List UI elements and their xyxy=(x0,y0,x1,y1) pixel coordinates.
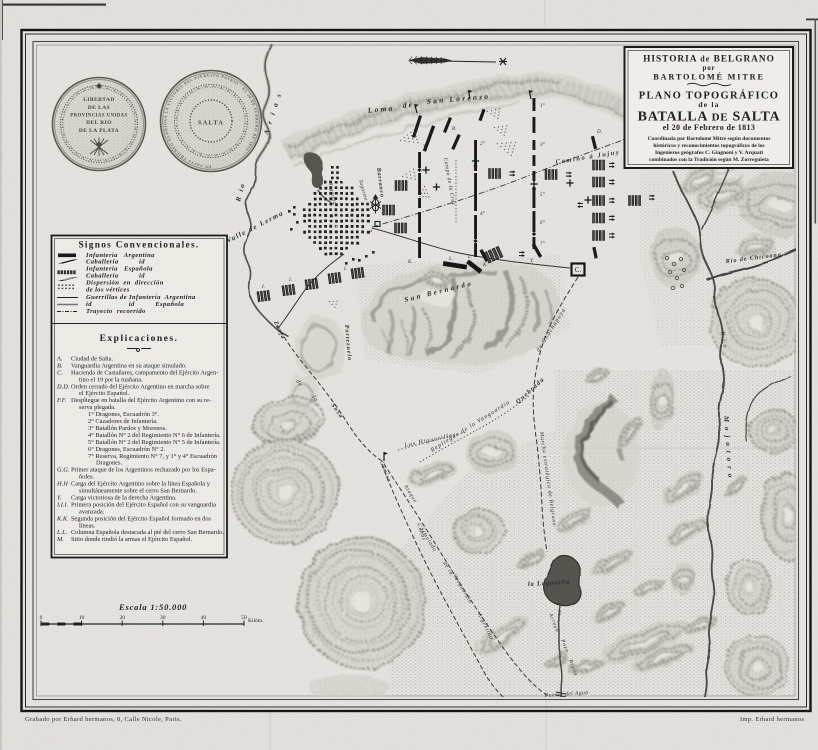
svg-text:A: A xyxy=(333,224,338,230)
svg-text:D.D.: D.D. xyxy=(56,383,70,390)
svg-text:L.L.: L.L. xyxy=(56,529,68,536)
svg-text:I.: I. xyxy=(343,267,347,272)
svg-text:20: 20 xyxy=(119,615,125,621)
svg-text:Signos Convencionales.: Signos Convencionales. xyxy=(78,241,199,251)
svg-text:tino el 19 por la mañana.: tino el 19 por la mañana. xyxy=(79,376,143,383)
svg-text:50: 50 xyxy=(241,615,247,621)
svg-text:Primera posición del Ejército: Primera posición del Ejército Español co… xyxy=(71,501,216,508)
svg-text:H.H: H.H xyxy=(56,481,68,488)
svg-text:C.: C. xyxy=(575,266,582,274)
svg-text:Guerrillas de Infantería Arge: Guerrillas de Infantería Argentina xyxy=(86,294,196,301)
svg-text:Y.: Y. xyxy=(423,145,427,150)
svg-text:3°: 3° xyxy=(540,143,545,148)
svg-text:L.: L. xyxy=(448,257,453,262)
svg-text:R.: R. xyxy=(451,127,457,132)
svg-text:ñoles.: ñoles. xyxy=(79,474,94,481)
svg-text:6° Dragones, Escuadrón N° 2.: 6° Dragones, Escuadrón N° 2. xyxy=(88,446,166,453)
svg-text:F.F.: F.F. xyxy=(56,397,67,404)
svg-text:I.: I. xyxy=(261,285,265,290)
svg-text:I.I.I.: I.I.I. xyxy=(56,501,69,508)
svg-text:Sitio donde rindió la armas el: Sitio donde rindió la armas el Ejército … xyxy=(71,536,192,543)
svg-text:x: x xyxy=(369,228,373,234)
svg-text:40: 40 xyxy=(201,615,207,621)
svg-text:2°: 2° xyxy=(480,142,485,147)
svg-text:Caballería id: Caballería id xyxy=(86,272,145,279)
svg-text:1°: 1° xyxy=(540,104,545,109)
svg-text:simultáneamente sobre el cerro: simultáneamente sobre el cerro San Berna… xyxy=(79,488,197,495)
svg-text:Grabado por Erhard hermanos, 8: Grabado por Erhard hermanos, 8, Calle Ni… xyxy=(25,716,182,723)
svg-text:D.: D. xyxy=(596,130,602,135)
svg-text:Escala 1:50.000: Escala 1:50.000 xyxy=(118,602,187,612)
svg-text:Coordinada por Bartolomé Mitre: Coordinada por Bartolomé Mitre según doc… xyxy=(648,136,771,142)
svg-text:I.: I. xyxy=(288,278,292,283)
svg-text:Explicaciones.: Explicaciones. xyxy=(100,334,179,344)
svg-text:históricos y reconocimientos t: históricos y reconocimientos topográfico… xyxy=(653,143,764,149)
svg-text:Trayecto recorrido: Trayecto recorrido xyxy=(86,308,146,315)
svg-text:Segunda posición del Ejército: Segunda posición del Ejército Español fo… xyxy=(71,515,212,522)
svg-text:PROVINCIAS UNIDAS: PROVINCIAS UNIDAS xyxy=(70,114,127,119)
svg-text:Kilóm.: Kilóm. xyxy=(248,618,264,624)
svg-text:DE LAS: DE LAS xyxy=(88,105,110,111)
svg-text:5°: 5° xyxy=(540,193,545,198)
svg-text:DEL RIO: DEL RIO xyxy=(86,120,112,126)
svg-text:Dispersión en dirección: Dispersión en dirección xyxy=(85,279,164,286)
svg-text:el Ejército Español.: el Ejército Español. xyxy=(79,390,130,397)
svg-text:B.: B. xyxy=(57,362,63,369)
svg-text:C.: C. xyxy=(57,369,63,376)
svg-text:por: por xyxy=(703,64,716,72)
svg-text:7°: 7° xyxy=(540,242,545,247)
svg-text:10: 10 xyxy=(79,615,85,621)
svg-text:K.: K. xyxy=(482,263,488,268)
svg-text:Y.: Y. xyxy=(530,259,534,264)
svg-text:30: 30 xyxy=(160,615,166,621)
svg-text:4°: 4° xyxy=(480,212,485,217)
svg-text:M.: M. xyxy=(56,536,64,543)
svg-text:de la: de la xyxy=(698,100,719,109)
svg-text:de: de xyxy=(402,100,414,110)
svg-text:G.G.: G.G. xyxy=(57,467,70,474)
svg-text:Columna Española destacada al: Columna Española destacada al pié del ce… xyxy=(71,529,224,536)
svg-text:6°: 6° xyxy=(540,221,545,226)
svg-text:Dragones.: Dragones. xyxy=(96,460,122,467)
svg-text:4° Batallón N° 2 del Regimient: 4° Batallón N° 2 del Regimiento N° 6 de … xyxy=(88,432,221,439)
svg-text:el 20 de Febrero de 1813: el 20 de Febrero de 1813 xyxy=(663,123,756,132)
svg-text:id id: id id Española xyxy=(86,301,184,308)
svg-text:LIBERTAD: LIBERTAD xyxy=(83,97,115,103)
svg-text:de los vértices: de los vértices xyxy=(86,286,130,293)
svg-text:L.: L. xyxy=(467,255,472,260)
svg-text:serva plegada.: serva plegada. xyxy=(79,404,116,411)
svg-text:HISTORIA de BELGRANO: HISTORIA de BELGRANO xyxy=(643,55,775,65)
svg-text:SALTA: SALTA xyxy=(198,120,224,127)
svg-text:D.: D. xyxy=(593,256,599,261)
svg-text:K.: K. xyxy=(407,260,413,265)
svg-text:Ingenieros geógrafos C. Giagno: Ingenieros geógrafos C. Giagnoni y V. Ar… xyxy=(655,150,764,156)
svg-text:Imp. Erhard hermanos: Imp. Erhard hermanos xyxy=(740,716,804,723)
svg-text:BARTOLOMÉ MITRE: BARTOLOMÉ MITRE xyxy=(653,72,765,82)
svg-text:2° Cazadores de Infantería.: 2° Cazadores de Infantería. xyxy=(88,418,158,425)
svg-text:Caballería id: Caballería id xyxy=(86,259,145,266)
svg-text:Vanguardia Argentina en su ata: Vanguardia Argentina en su ataque simula… xyxy=(71,362,187,369)
svg-text:combinados con la Tradición se: combinados con la Tradición según M. Zor… xyxy=(649,157,769,163)
svg-text:0: 0 xyxy=(40,615,43,621)
svg-text:K.K.: K.K. xyxy=(56,515,69,522)
svg-text:DE LA PLATA: DE LA PLATA xyxy=(79,128,119,134)
